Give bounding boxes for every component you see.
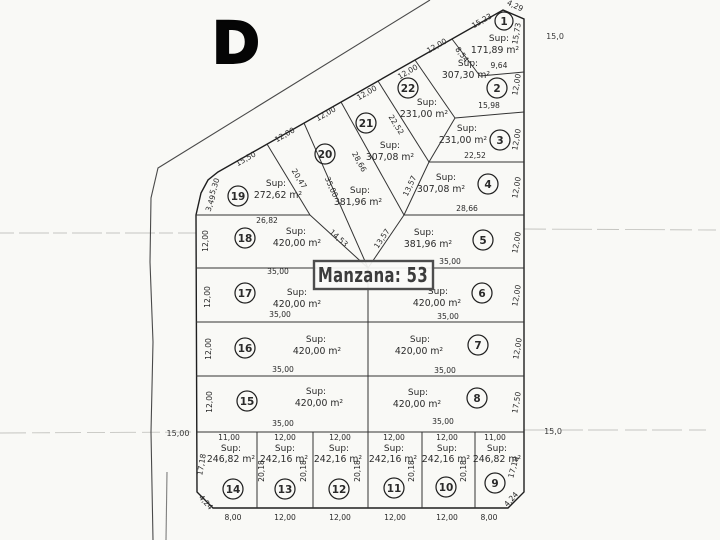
lot-18-sup-label: Sup:	[286, 227, 306, 237]
lot-15-number: 15	[240, 396, 255, 408]
lot-20-number: 20	[318, 149, 333, 161]
lot-17-dim-bottom: 35,00	[269, 310, 291, 319]
lot-19-sup-label: Sup:	[266, 179, 286, 189]
lot-10-number: 10	[439, 482, 454, 494]
lot-4-area: 307,08 m²	[417, 184, 466, 195]
lot-22-number: 22	[401, 83, 416, 95]
sheet-letter: D	[212, 9, 260, 77]
street-width-label: 15,0	[544, 427, 562, 436]
lot-4: 4 Sup: 307,08 m² 13,57 12,00 28,66	[401, 173, 523, 213]
lot-14-sup-label: Sup:	[221, 444, 241, 454]
lot-10-sup-label: Sup:	[437, 444, 457, 454]
parcel-line	[455, 112, 524, 118]
lot-5-sup-label: Sup:	[414, 228, 434, 238]
lot-19: 19 Sup: 272,62 m² 15,50 5,30 3,49 20,47	[204, 149, 309, 212]
lot-16: 16 Sup: 420,00 m² 12,00 35,00	[204, 335, 341, 374]
block-title-group: Manzana: 53	[314, 261, 433, 289]
lot-8-number: 8	[473, 393, 480, 405]
lot-6-area: 420,00 m²	[413, 298, 462, 309]
lot-2-area: 307,30 m²	[442, 70, 491, 81]
lot-8-dim-bottom: 35,00	[432, 417, 454, 426]
lot-2-dim-top: 12,00	[425, 36, 448, 55]
lot-3-sup-label: Sup:	[457, 124, 477, 134]
lot-3-number: 3	[496, 135, 503, 147]
lot-17: 17 35,00 Sup: 420,00 m² 12,00 35,00	[203, 267, 321, 319]
lot-6-dim-bottom: 35,00	[437, 312, 459, 321]
lot-12-dim-top: 12,00	[329, 433, 351, 442]
lot-4-dim-left: 13,57	[401, 174, 418, 198]
lot-8-sup-label: Sup:	[408, 388, 428, 398]
lot-18-area: 420,00 m²	[273, 238, 322, 249]
lot-16-dim-left: 12,00	[204, 338, 213, 360]
lot-center-sup-label: Sup:	[350, 186, 370, 196]
lot-2-number: 2	[493, 83, 500, 95]
lot-15: 15 Sup: 420,00 m² 12,00 35,00	[205, 387, 343, 428]
lot-4-sup-label: Sup:	[436, 173, 456, 183]
lot-11-dim-bottom: 12,00	[384, 513, 406, 522]
scanned-cadastral-plan: D 15,0 15,0 15,00 1 Sup: 171,89 m² 15,23…	[0, 0, 720, 540]
lot-21-sup-label: Sup:	[380, 141, 400, 151]
lot-13-dim-side-left: 20,18	[257, 460, 266, 482]
lot-11-dim-top: 12,00	[383, 433, 405, 442]
lot-center-area: 381,96 m²	[334, 197, 383, 208]
lot-center-dim-left: 35,00	[323, 175, 340, 199]
lot-14-dim-corner: 4,24	[197, 493, 215, 512]
lot-9-number: 9	[491, 478, 498, 490]
lot-10-dim-side: 20,18	[459, 460, 468, 482]
lot-15-area: 420,00 m²	[295, 398, 344, 409]
lot-2-dim-right: 12,00	[510, 73, 523, 96]
lot-7-number: 7	[474, 340, 481, 352]
lot-12-dim-bottom: 12,00	[329, 513, 351, 522]
lot-8-dim-right: 17,50	[510, 391, 523, 414]
lot-22-area: 231,00 m²	[400, 109, 449, 120]
lot-3-area: 231,00 m²	[439, 135, 488, 146]
lot-20: 20 12,00	[273, 125, 335, 164]
lot-6-number: 6	[478, 288, 485, 300]
lot-5-area: 381,96 m²	[404, 239, 453, 250]
lot-4-dim-bottom: 28,66	[456, 204, 478, 213]
lot-11-number: 11	[387, 483, 402, 495]
lot-13-sup-label: Sup:	[275, 444, 295, 454]
lot-17-number: 17	[238, 288, 253, 300]
plan-drawing: D 15,0 15,0 15,00 1 Sup: 171,89 m² 15,23…	[0, 0, 720, 540]
street-width-label: 15,0	[546, 32, 564, 41]
lot-19-dim-left-upper: 5,30	[208, 177, 222, 196]
lot-18-dim-right: 14,53	[328, 228, 350, 249]
lot-17-dim-left: 12,00	[203, 286, 212, 308]
lot-18-dim-left: 12,00	[201, 230, 210, 252]
lot-14-dim-bottom: 8,00	[225, 513, 242, 522]
lot-20-dim-top: 12,00	[273, 125, 296, 144]
lot-15-sup-label: Sup:	[306, 387, 326, 397]
lot-11-sup-label: Sup:	[384, 444, 404, 454]
lot-17-area: 420,00 m²	[273, 299, 322, 310]
lot-13-number: 13	[278, 484, 293, 496]
lot-5-dim-right: 12,00	[510, 231, 523, 254]
lot-8-area: 420,00 m²	[393, 399, 442, 410]
lot-7-sup-label: Sup:	[410, 335, 430, 345]
lot-7-dim-bottom: 35,00	[434, 366, 456, 375]
lot-9-dim-top: 11,00	[484, 433, 506, 442]
lot-9-sup-label: Sup:	[487, 444, 507, 454]
lot-19-dim-left-lower: 3,49	[204, 194, 218, 213]
street-width-label: 15,00	[167, 429, 190, 438]
lot-4-dim-right: 12,00	[510, 176, 523, 199]
lot-6-dim-right: 12,00	[510, 284, 523, 307]
lot-10-dim-bottom: 12,00	[436, 513, 458, 522]
street-edge-line-2	[166, 472, 167, 540]
lot-18-number: 18	[238, 233, 253, 245]
lot-14-area: 246,82 m²	[207, 454, 256, 465]
lot-12-sup-label: Sup:	[329, 444, 349, 454]
lot-1-dim-corner: 4,29	[505, 0, 524, 13]
lot-15-dim-left: 12,00	[205, 391, 214, 413]
lot-8: 8 Sup: 420,00 m² 17,50 35,00	[393, 388, 523, 426]
lot-12-dim-side: 20,18	[353, 460, 362, 482]
lot-22-sup-label: Sup:	[417, 98, 437, 108]
lot-16-dim-bottom: 35,00	[272, 365, 294, 374]
lot-1-number: 1	[500, 16, 507, 28]
lot-11-dim-side: 20,18	[407, 460, 416, 482]
lot-18: 18 26,82 Sup: 420,00 m² 12,00 14,53	[201, 216, 350, 252]
lot-18-dim-top: 26,82	[256, 216, 278, 225]
lot-19-number: 19	[231, 191, 246, 203]
lot-13-dim-bottom: 12,00	[274, 513, 296, 522]
lot-7: 7 Sup: 420,00 m² 12,00 35,00	[395, 335, 524, 375]
lot-16-sup-label: Sup:	[306, 335, 326, 345]
block-title: Manzana: 53	[318, 263, 428, 287]
lot-5-number: 5	[479, 235, 486, 247]
lot-16-number: 16	[238, 343, 253, 355]
lot-9-dim-bottom: 8,00	[481, 513, 498, 522]
lot-21-area: 307,08 m²	[366, 152, 415, 163]
lot-16-area: 420,00 m²	[293, 346, 342, 357]
lot-7-dim-right: 12,00	[511, 337, 524, 360]
lot-1-area: 171,89 m²	[471, 45, 520, 56]
lot-center-dim-top: 12,00	[314, 104, 337, 123]
lot-13-dim-side-right: 20,18	[299, 460, 308, 482]
lot-1-dim-top: 15,23	[470, 11, 493, 30]
lot-17-sup-label: Sup:	[287, 288, 307, 298]
lot-5-dim-bottom: 35,00	[439, 257, 461, 266]
lot-19-dim-top: 15,50	[234, 149, 257, 168]
lot-21-dim-top: 12,00	[355, 83, 378, 102]
scan-streak	[524, 229, 716, 230]
lot-21: 21 Sup: 307,08 m² 12,00 22,52	[355, 83, 414, 163]
lot-19-area: 272,62 m²	[254, 190, 303, 201]
lot-2-sup-label: Sup:	[458, 59, 478, 69]
lot-15-dim-bottom: 35,00	[272, 419, 294, 428]
lot-7-area: 420,00 m²	[395, 346, 444, 357]
lot-14-number: 14	[226, 484, 241, 496]
lot-1-sup-label: Sup:	[489, 34, 509, 44]
lot-21-number: 21	[359, 118, 374, 130]
lot-12-number: 12	[332, 484, 347, 496]
lot-13-dim-top: 12,00	[274, 433, 296, 442]
scan-streak	[0, 432, 193, 433]
lot-4-number: 4	[484, 179, 491, 191]
lot-14-dim-top: 11,00	[218, 433, 240, 442]
lot-2-dim-bottom: 15,98	[478, 101, 500, 110]
lot-3-dim-right: 12,00	[510, 128, 523, 151]
lot-1-dim-bottom: 9,64	[491, 61, 508, 70]
lot-17-dim-top: 35,00	[267, 267, 289, 276]
lot-10-dim-top: 12,00	[436, 433, 458, 442]
lot-3-dim-bottom: 22,52	[464, 151, 486, 160]
lot-3: 3 Sup: 231,00 m² 12,00 22,52	[439, 124, 523, 160]
